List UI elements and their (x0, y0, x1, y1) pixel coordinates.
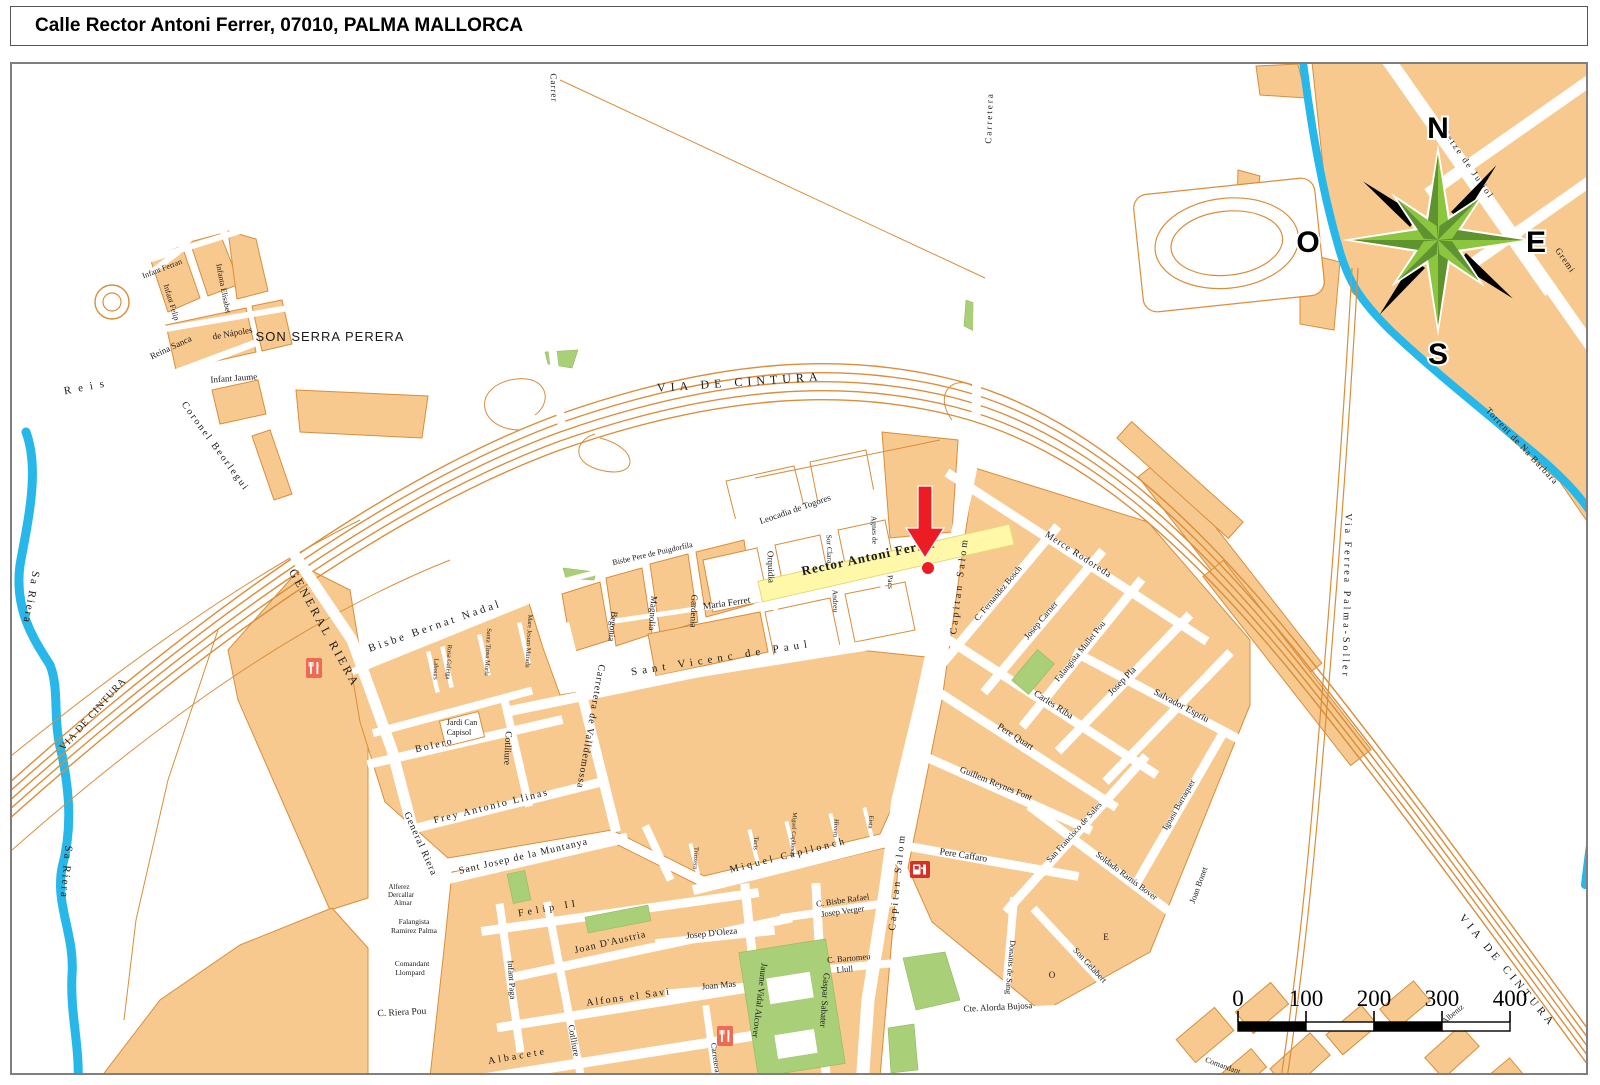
map-application: Calle Rector Antoni Ferrer, 07010, PALMA… (0, 0, 1600, 1085)
street-label: Carrer (548, 73, 559, 102)
street-label: Ramirez Palma (391, 926, 438, 935)
street-label: Jardi Can (447, 718, 477, 727)
street-label: Comandant (395, 959, 430, 968)
scale-bar-value: 300 (1425, 986, 1460, 1011)
street-label: Carretera (983, 92, 995, 144)
restaurant-icon (306, 658, 322, 678)
street-label: Hivern (831, 819, 839, 838)
scale-bar-value: 200 (1357, 986, 1392, 1011)
street-label: SON SERRA PERERA (256, 329, 405, 344)
gas-station-icon (910, 861, 930, 878)
scale-bar-segment (1306, 1022, 1374, 1031)
street-label: Alferez (389, 883, 410, 891)
city-map[interactable]: VIA DE CINTURAVIA DE CINTURAVIA DE CINTU… (10, 62, 1588, 1075)
street-label: Gardenia (688, 594, 699, 627)
address-title: Calle Rector Antoni Ferrer, 07010, PALMA… (35, 15, 523, 37)
address-title-bar: Calle Rector Antoni Ferrer, 07010, PALMA… (10, 6, 1588, 46)
street-label: Llompard (395, 968, 425, 977)
scale-bar-segment (1238, 1022, 1306, 1031)
roundabout (95, 285, 129, 319)
street-label: Orquidia (765, 551, 776, 583)
scale-bar-value: 100 (1289, 986, 1324, 1011)
street-label: Andreu (831, 590, 841, 613)
scale-bar-value: 400 (1493, 986, 1528, 1011)
street-label: Pacs (886, 575, 895, 589)
scale-bar-segment (1374, 1022, 1442, 1031)
scale-bar-segment (1442, 1022, 1510, 1031)
street-label: Tacis (752, 836, 760, 850)
street-label: Agnes de (870, 516, 880, 545)
street-label: Falangista (399, 917, 430, 926)
street-label: Almar (394, 899, 413, 907)
street-label: Trinxera (691, 847, 699, 870)
map-viewport[interactable]: VIA DE CINTURAVIA DE CINTURAVIA DE CINTU… (10, 62, 1588, 1075)
street-label: Eista (867, 815, 875, 828)
street-label: E (1103, 932, 1109, 942)
marker-dot (922, 562, 935, 575)
compass-letter-o: O (1296, 226, 1319, 259)
compass-letter-e: E (1526, 226, 1546, 259)
scale-bar-value: 0 (1232, 986, 1244, 1011)
street-label: Labours (431, 658, 439, 680)
street-label: O (1049, 970, 1056, 980)
street-label: Dercallar (388, 891, 415, 899)
compass-letter-s: S (1428, 338, 1448, 371)
restaurant-icon (717, 1026, 733, 1046)
street-label: Cotlliure (501, 731, 513, 765)
compass-letter-n: N (1427, 112, 1449, 145)
street-label: Llull (836, 963, 854, 974)
